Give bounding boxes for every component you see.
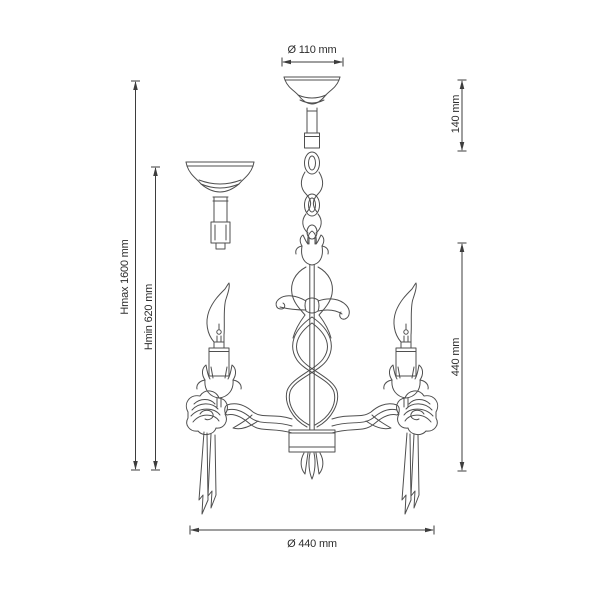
dimension-drawing-sheet: Ø 110 mm Hmax 1600 mm Hmin 620 mm 140 mm… <box>0 0 600 600</box>
left-arm-icon <box>225 404 292 433</box>
arrow-down-icon <box>460 142 465 151</box>
arrow-up-icon <box>133 81 138 90</box>
dimension-canopy-diameter: Ø 110 mm <box>282 44 343 67</box>
arrow-up-icon <box>153 167 158 176</box>
dimension-max-height: Hmax 1600 mm <box>119 81 140 470</box>
arrow-down-icon <box>153 461 158 470</box>
hub-cylinder-icon <box>289 430 335 452</box>
flush-mount-canopy-icon <box>186 162 254 249</box>
vase-body-icon <box>292 267 333 338</box>
right-arm-icon <box>332 404 399 433</box>
tulip-ornament-icon <box>296 231 329 265</box>
right-bobeche-icon <box>384 365 428 407</box>
arrow-right-icon <box>334 60 343 65</box>
right-rose-icon <box>397 391 438 514</box>
canopy-diameter-label: Ø 110 mm <box>288 44 337 56</box>
dimension-fixture-height: 440 mm <box>450 243 467 471</box>
min-height-label: Hmin 620 mm <box>143 284 155 350</box>
arrow-right-icon <box>425 528 434 533</box>
hanging-chain-icon <box>301 152 322 244</box>
arrow-left-icon <box>282 60 291 65</box>
dimension-min-height: Hmin 620 mm <box>143 167 160 470</box>
arrow-left-icon <box>190 528 199 533</box>
ceiling-canopy-icon <box>284 77 340 148</box>
ribbon-bow-icon <box>276 296 349 319</box>
center-rod <box>310 265 314 430</box>
left-rose-icon <box>186 391 227 514</box>
fixture-diameter-label: Ø 440 mm <box>287 538 337 550</box>
leaf-finial-icon <box>301 453 323 479</box>
fixture-height-label: 440 mm <box>450 338 462 377</box>
arrow-up-icon <box>460 243 465 252</box>
dimension-fixture-diameter: Ø 440 mm <box>190 526 434 551</box>
left-candle-bulb-icon <box>207 283 229 376</box>
chandelier-illustration <box>186 77 437 514</box>
arrow-up-icon <box>460 80 465 89</box>
arrow-down-icon <box>133 461 138 470</box>
dimension-canopy-height: 140 mm <box>450 80 467 151</box>
max-height-label: Hmax 1600 mm <box>119 239 131 314</box>
chandelier-dimension-diagram: Ø 110 mm Hmax 1600 mm Hmin 620 mm 140 mm… <box>0 0 600 600</box>
left-bobeche-icon <box>197 365 241 407</box>
canopy-height-label: 140 mm <box>450 95 462 134</box>
right-candle-bulb-icon <box>394 283 416 376</box>
arrow-down-icon <box>460 462 465 471</box>
